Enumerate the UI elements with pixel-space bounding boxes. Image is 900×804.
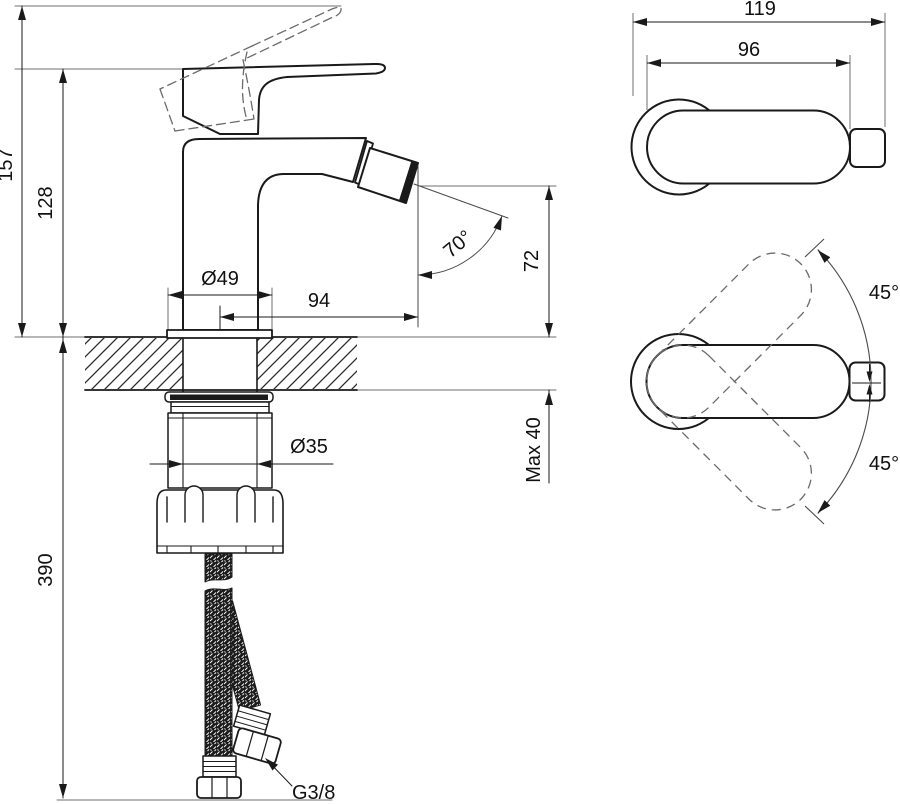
dim-hose-drop: 390	[35, 553, 57, 586]
countertop-hatch-right	[257, 338, 357, 389]
dim-swivel-up: 45°	[869, 282, 899, 304]
swivel-handle-plan	[647, 345, 850, 418]
rubber-seal	[170, 395, 268, 401]
mounting-sleeve	[168, 413, 272, 488]
handle-end-cap	[850, 129, 885, 167]
swivel-handle-end-cap	[850, 363, 885, 401]
base-flange	[167, 330, 272, 338]
hose-front-lower	[205, 588, 232, 757]
dim-total-height: 157	[0, 148, 17, 181]
dim-outlet-height: 72	[521, 250, 543, 272]
fixing-set	[157, 392, 283, 553]
handle-plan	[647, 111, 850, 184]
hose-front-upper	[205, 554, 232, 582]
dim-swivel-down: 45°	[869, 453, 899, 475]
bidet-mixer-drawing: 157 128 390 Ø49 94 70° 72 Max 40 Ø35 G3/…	[0, 0, 900, 804]
countertop-hatch-left	[85, 338, 183, 389]
knurled-nut	[157, 490, 283, 553]
dim-spout-reach: 94	[308, 290, 330, 312]
dim-hose-thread: G3/8	[292, 782, 335, 804]
hose-front-hex-nut	[197, 777, 241, 798]
dim-shank-diameter: Ø35	[290, 436, 328, 458]
dim-total-length: 119	[744, 0, 776, 20]
dim-body-length: 96	[738, 39, 760, 61]
dim-deck-thickness: Max 40	[523, 417, 545, 483]
dim-base-diameter: Ø49	[201, 268, 239, 290]
dim-body-height: 128	[35, 186, 57, 219]
technical-drawing-page: 157 128 390 Ø49 94 70° 72 Max 40 Ø35 G3/…	[0, 0, 900, 804]
hose-front-connector	[203, 756, 236, 777]
spacer-ring	[171, 402, 269, 413]
